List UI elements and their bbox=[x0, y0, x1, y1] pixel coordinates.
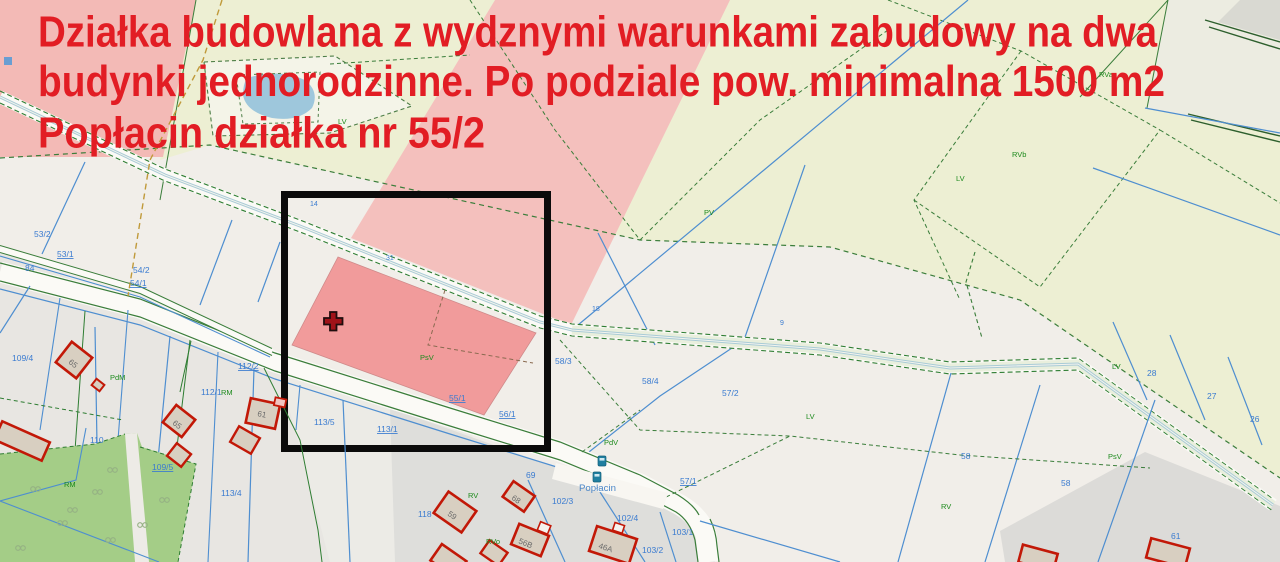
svg-text:57/1: 57/1 bbox=[680, 476, 697, 486]
svg-text:54/1: 54/1 bbox=[130, 278, 147, 288]
svg-text:RV: RV bbox=[941, 502, 951, 511]
svg-text:53/2: 53/2 bbox=[34, 229, 51, 239]
svg-text:18: 18 bbox=[592, 306, 600, 313]
svg-text:113/4: 113/4 bbox=[221, 488, 242, 498]
svg-text:109/4: 109/4 bbox=[12, 353, 34, 363]
svg-text:69: 69 bbox=[526, 470, 536, 480]
svg-text:61: 61 bbox=[1171, 531, 1181, 541]
svg-text:58/3: 58/3 bbox=[555, 356, 572, 366]
svg-text:53/1: 53/1 bbox=[57, 249, 74, 259]
svg-text:LV: LV bbox=[1112, 362, 1121, 371]
svg-text:113/5: 113/5 bbox=[314, 417, 335, 427]
svg-text:Popłacin: Popłacin bbox=[579, 483, 616, 494]
svg-text:31: 31 bbox=[386, 255, 394, 262]
svg-text:58: 58 bbox=[1061, 478, 1071, 488]
svg-text:PdV: PdV bbox=[604, 438, 618, 447]
svg-text:LV: LV bbox=[806, 412, 815, 421]
svg-text:110: 110 bbox=[90, 435, 104, 445]
svg-text:PV: PV bbox=[704, 208, 714, 217]
svg-text:102/4: 102/4 bbox=[617, 513, 639, 523]
svg-text:28: 28 bbox=[1147, 368, 1157, 378]
svg-text:26: 26 bbox=[1250, 414, 1260, 424]
svg-text:RVb: RVb bbox=[1012, 150, 1026, 159]
svg-text:84: 84 bbox=[25, 263, 35, 273]
svg-text:PsV: PsV bbox=[420, 353, 434, 362]
svg-text:113/1: 113/1 bbox=[377, 424, 398, 434]
svg-text:RM: RM bbox=[64, 480, 76, 489]
svg-text:RVo: RVo bbox=[486, 537, 500, 546]
svg-text:budynki jednorodzinne. Po podz: budynki jednorodzinne. Po podziale pow. … bbox=[38, 57, 1165, 106]
svg-text:103/1: 103/1 bbox=[672, 527, 694, 537]
svg-text:RV: RV bbox=[468, 491, 478, 500]
svg-text:54/2: 54/2 bbox=[133, 265, 150, 275]
svg-text:56/1: 56/1 bbox=[499, 409, 516, 419]
svg-text:102/3: 102/3 bbox=[552, 496, 574, 506]
svg-text:PdM: PdM bbox=[110, 373, 125, 382]
svg-text:55/1: 55/1 bbox=[449, 393, 466, 403]
svg-text:27: 27 bbox=[1207, 391, 1217, 401]
svg-text:Działka budowlana z wydznymi w: Działka budowlana z wydznymi warunkami z… bbox=[38, 8, 1157, 57]
svg-text:103/2: 103/2 bbox=[642, 545, 664, 555]
svg-text:14: 14 bbox=[310, 201, 318, 208]
svg-text:112/1: 112/1 bbox=[201, 387, 222, 397]
svg-text:118: 118 bbox=[418, 509, 432, 519]
svg-text:58: 58 bbox=[961, 451, 971, 461]
svg-text:PsV: PsV bbox=[1108, 452, 1122, 461]
svg-text:57/2: 57/2 bbox=[722, 388, 739, 398]
svg-text:58/4: 58/4 bbox=[642, 376, 659, 386]
svg-text:112/2: 112/2 bbox=[238, 361, 259, 371]
svg-text:9: 9 bbox=[780, 320, 784, 327]
svg-text:109/5: 109/5 bbox=[152, 462, 174, 472]
svg-text:Popłacin działka nr 55/2: Popłacin działka nr 55/2 bbox=[38, 109, 485, 158]
svg-text:LV: LV bbox=[956, 174, 965, 183]
svg-text:RM: RM bbox=[221, 388, 233, 397]
